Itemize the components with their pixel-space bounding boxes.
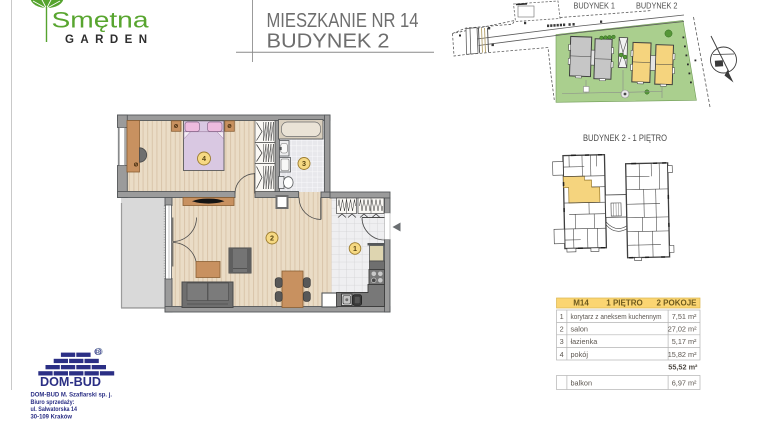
svg-text:DOM-BUD: DOM-BUD bbox=[40, 374, 101, 389]
svg-text:M14: M14 bbox=[573, 299, 589, 308]
svg-text:łazienka: łazienka bbox=[571, 337, 599, 346]
svg-text:Biuro sprzedaży:: Biuro sprzedaży: bbox=[31, 399, 75, 406]
svg-text:3: 3 bbox=[560, 337, 564, 346]
svg-text:MIESZKANIE NR 14: MIESZKANIE NR 14 bbox=[267, 10, 419, 32]
svg-text:DOM-BUD M. Szaflarski sp. j.: DOM-BUD M. Szaflarski sp. j. bbox=[31, 392, 113, 399]
svg-text:2: 2 bbox=[270, 234, 274, 243]
svg-text:1: 1 bbox=[353, 244, 357, 253]
svg-text:3: 3 bbox=[302, 159, 306, 168]
svg-text:BUDYNEK 1: BUDYNEK 1 bbox=[574, 2, 616, 11]
svg-text:5,17 m²: 5,17 m² bbox=[672, 337, 697, 346]
svg-text:GARDEN: GARDEN bbox=[65, 34, 147, 46]
svg-text:ul. Salwatorska 14: ul. Salwatorska 14 bbox=[31, 406, 78, 413]
svg-text:BUDYNEK 2 - 1 PIĘTRO: BUDYNEK 2 - 1 PIĘTRO bbox=[583, 133, 667, 144]
svg-text:2: 2 bbox=[560, 324, 564, 333]
svg-text:6,97 m²: 6,97 m² bbox=[672, 379, 697, 388]
svg-text:4: 4 bbox=[560, 350, 564, 359]
svg-text:salon: salon bbox=[571, 324, 588, 333]
svg-text:Smętna: Smętna bbox=[52, 8, 150, 33]
svg-text:pokój: pokój bbox=[571, 350, 589, 359]
svg-text:korytarz z aneksem kuchennym: korytarz z aneksem kuchennym bbox=[571, 312, 662, 321]
svg-text:4: 4 bbox=[202, 154, 206, 163]
svg-text:BUDYNEK 2: BUDYNEK 2 bbox=[636, 2, 678, 11]
svg-text:BUDYNEK 2: BUDYNEK 2 bbox=[267, 31, 390, 53]
svg-text:1: 1 bbox=[560, 312, 564, 321]
svg-text:15,82 m²: 15,82 m² bbox=[668, 350, 697, 359]
svg-text:7,51 m²: 7,51 m² bbox=[672, 312, 697, 321]
svg-text:30-109 Kraków: 30-109 Kraków bbox=[31, 413, 73, 420]
svg-text:27,02 m²: 27,02 m² bbox=[668, 324, 697, 333]
svg-text:2 POKOJE: 2 POKOJE bbox=[656, 299, 697, 308]
svg-text:55,52 m²: 55,52 m² bbox=[668, 363, 698, 372]
svg-text:1 PIĘTRO: 1 PIĘTRO bbox=[606, 299, 642, 308]
svg-text:balkon: balkon bbox=[571, 379, 593, 388]
